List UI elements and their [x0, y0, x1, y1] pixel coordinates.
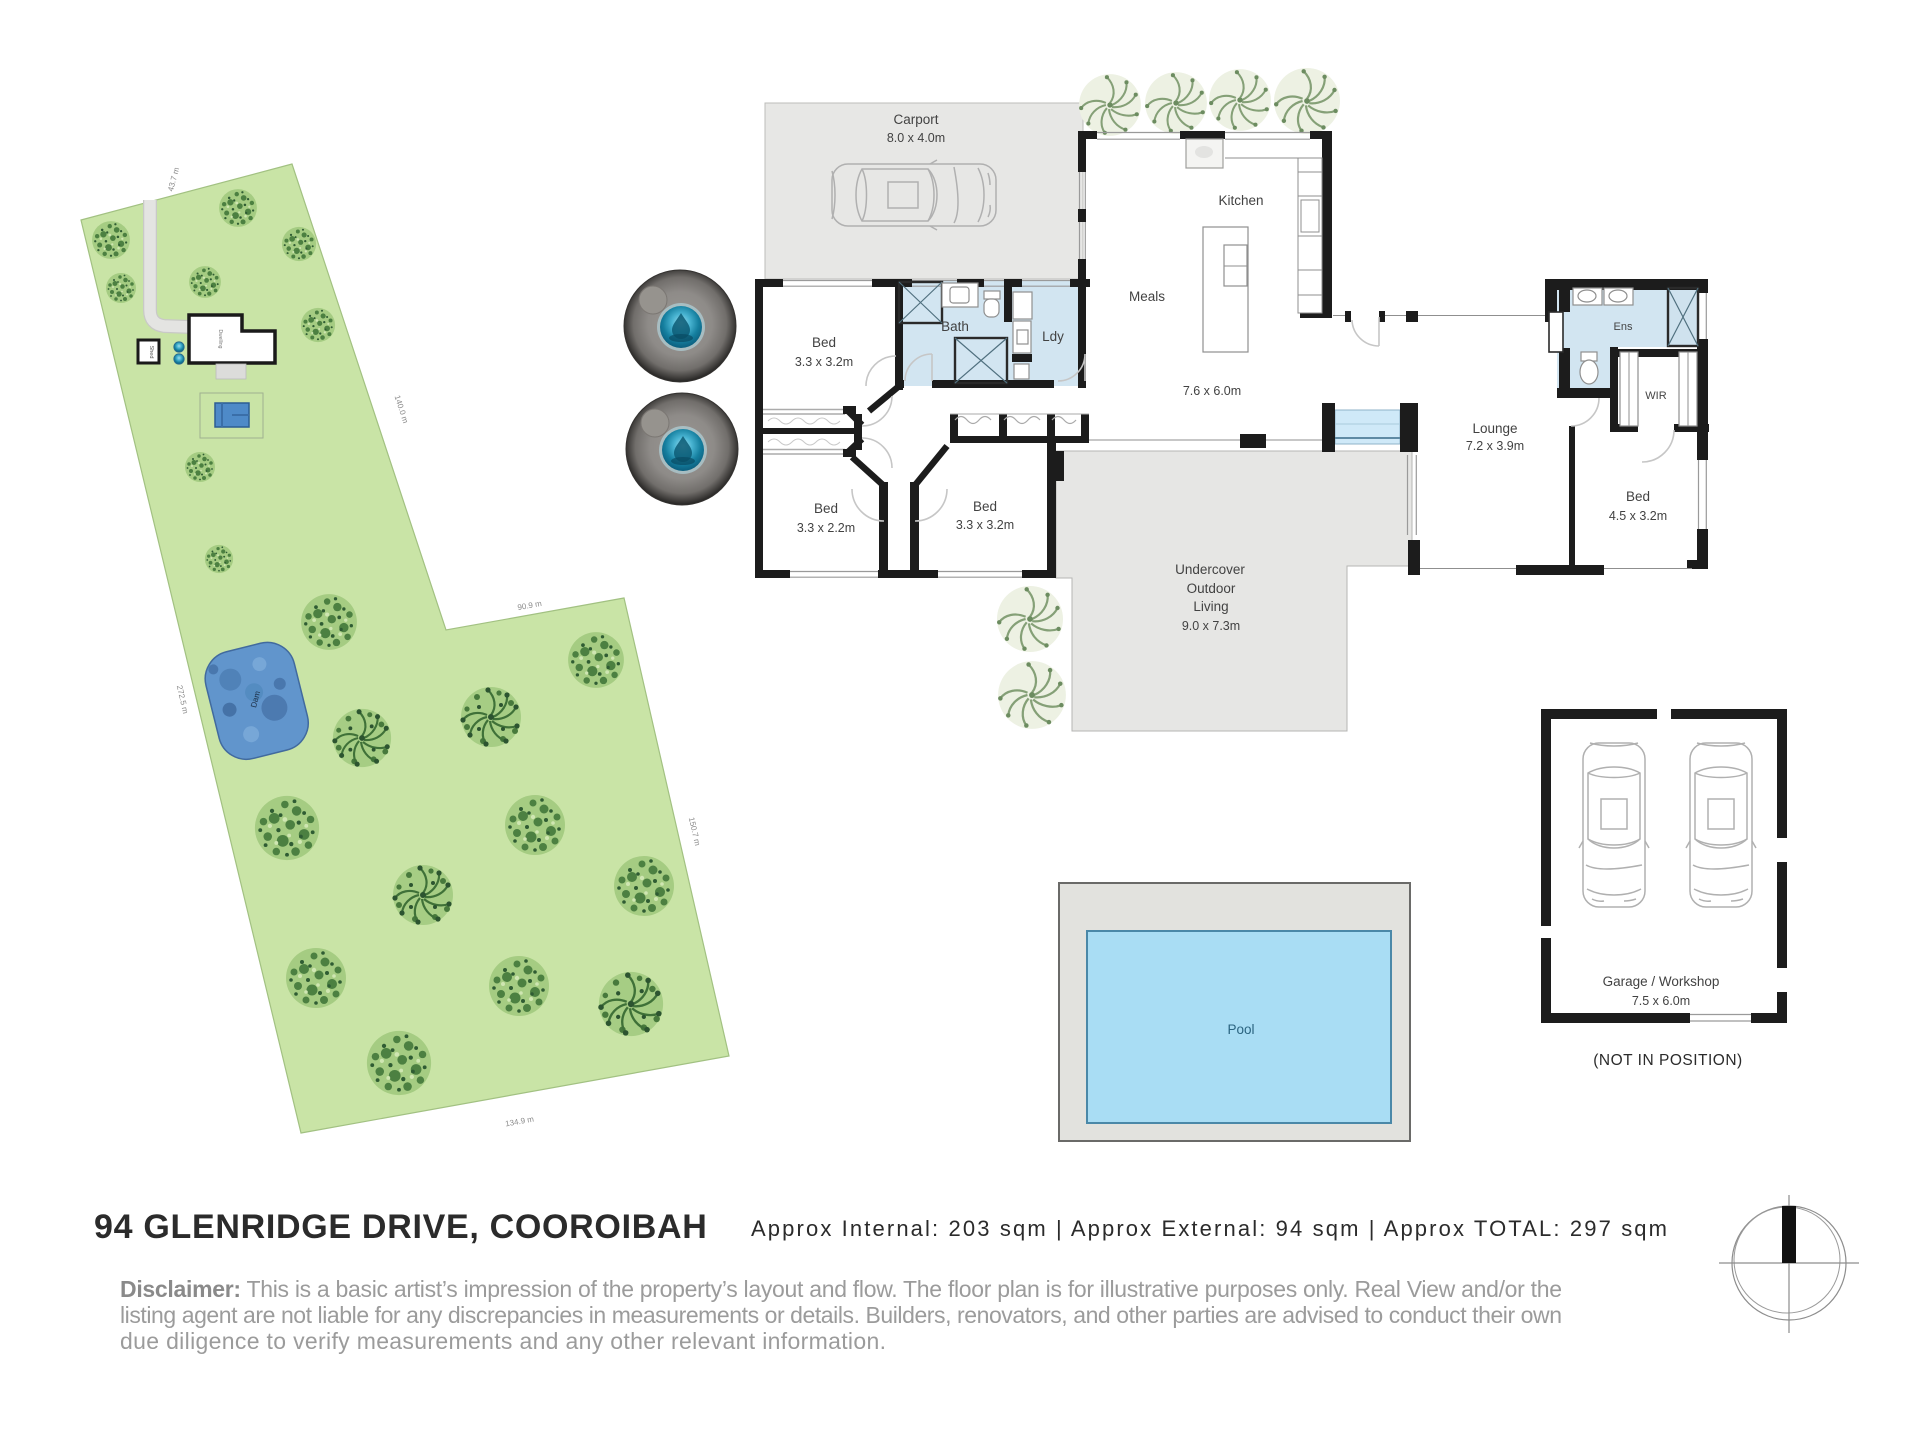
svg-text:Garage / Workshop: Garage / Workshop: [1603, 974, 1720, 989]
svg-text:Disclaimer: This is a basic ar: Disclaimer: This is a basic artist’s imp…: [120, 1276, 1562, 1302]
svg-text:94 GLENRIDGE DRIVE, COOROIBAH: 94 GLENRIDGE DRIVE, COOROIBAH: [94, 1208, 708, 1246]
svg-text:WIR: WIR: [1645, 390, 1666, 402]
svg-text:Bed: Bed: [1626, 489, 1650, 504]
svg-text:listing agent are not liable f: listing agent are not liable for any dis…: [120, 1302, 1562, 1328]
svg-text:7.2 x 3.9m: 7.2 x 3.9m: [1466, 439, 1524, 453]
svg-text:Dwelling: Dwelling: [217, 330, 223, 349]
svg-text:Ens: Ens: [1614, 321, 1633, 333]
svg-text:Ldy: Ldy: [1042, 329, 1064, 344]
svg-text:8.0 x 4.0m: 8.0 x 4.0m: [887, 131, 945, 145]
svg-text:Bed: Bed: [973, 499, 997, 514]
svg-text:Lounge: Lounge: [1472, 421, 1517, 436]
svg-text:Approx Internal: 203 sqm | App: Approx Internal: 203 sqm | Approx Extern…: [751, 1216, 1667, 1241]
svg-text:Carport: Carport: [893, 112, 938, 127]
svg-text:7.6 x 6.0m: 7.6 x 6.0m: [1183, 384, 1241, 398]
svg-text:Bath: Bath: [941, 319, 969, 334]
svg-text:3.3 x 2.2m: 3.3 x 2.2m: [797, 521, 855, 535]
svg-text:Living: Living: [1193, 599, 1228, 614]
svg-text:7.5 x 6.0m: 7.5 x 6.0m: [1632, 994, 1690, 1008]
svg-text:Shed: Shed: [148, 346, 154, 359]
svg-text:Outdoor: Outdoor: [1187, 581, 1236, 596]
svg-text:Pool: Pool: [1227, 1022, 1254, 1037]
svg-text:4.5 x 3.2m: 4.5 x 3.2m: [1609, 509, 1667, 523]
svg-text:Undercover: Undercover: [1175, 562, 1245, 577]
svg-text:9.0 x 7.3m: 9.0 x 7.3m: [1182, 619, 1240, 633]
svg-text:3.3 x 3.2m: 3.3 x 3.2m: [956, 518, 1014, 532]
svg-text:Bed: Bed: [812, 335, 836, 350]
svg-text:3.3 x 3.2m: 3.3 x 3.2m: [795, 355, 853, 369]
svg-text:Bed: Bed: [814, 501, 838, 516]
svg-text:(NOT IN POSITION): (NOT IN POSITION): [1593, 1052, 1742, 1069]
svg-text:due diligence to verify measur: due diligence to verify measurements and…: [120, 1328, 886, 1354]
svg-text:Meals: Meals: [1129, 289, 1165, 304]
svg-text:Kitchen: Kitchen: [1218, 193, 1263, 208]
